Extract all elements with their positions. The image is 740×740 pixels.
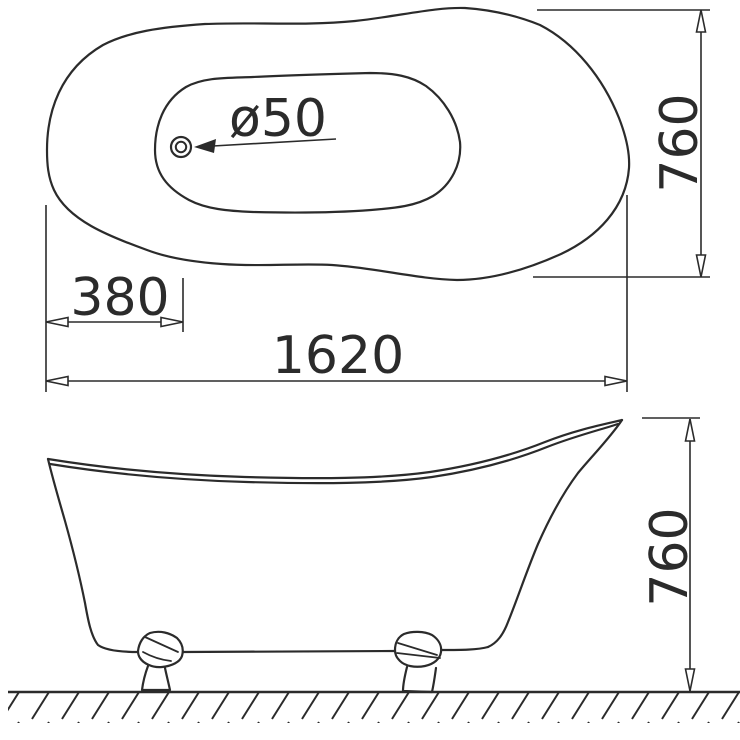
front-foot-leg <box>142 666 170 690</box>
arrowhead-top-icon <box>686 419 695 441</box>
side-view <box>48 420 622 692</box>
drain-diameter-label: ø50 <box>229 89 327 149</box>
rear-foot <box>395 632 441 692</box>
tub-outer-outline <box>47 8 629 280</box>
drain-dimension: ø50 <box>194 89 336 153</box>
tub-front-edge <box>48 459 138 652</box>
ground <box>8 692 740 723</box>
arrowhead-top-icon <box>697 10 706 32</box>
tub-bottom-line-right <box>442 647 488 650</box>
arrowhead-bottom-icon <box>686 669 695 691</box>
overall-width-label: 760 <box>650 93 710 192</box>
top-view <box>47 8 629 280</box>
technical-drawing-canvas: ø50 380 1620 760 <box>0 0 740 740</box>
rim-inner-line <box>50 424 618 483</box>
arrowhead-left-icon <box>46 377 68 386</box>
front-foot-knuckle-detail2 <box>143 652 171 661</box>
dimension-380: 380 <box>46 205 183 392</box>
tub-bottom-line-mid <box>183 651 395 652</box>
overall-height-label: 760 <box>640 507 700 606</box>
arrowhead-left-icon <box>46 318 68 327</box>
drain-icon <box>171 137 191 157</box>
drain-leader-arrow-icon <box>194 139 216 153</box>
dimension-760-width: 760 <box>533 10 710 277</box>
dimension-760-height: 760 <box>640 418 700 691</box>
drain-offset-label: 380 <box>70 268 169 328</box>
front-foot-knuckle-detail <box>145 637 178 652</box>
arrowhead-right-icon <box>605 377 627 386</box>
front-foot <box>138 632 183 690</box>
overall-length-label: 1620 <box>272 326 404 386</box>
ground-hatching <box>8 693 740 723</box>
arrowhead-bottom-icon <box>697 255 706 277</box>
rim-outer-line <box>48 420 622 478</box>
rear-foot-leg <box>403 667 436 692</box>
drain-icon-inner <box>176 142 186 152</box>
bathtub-dimension-drawing: ø50 380 1620 760 <box>0 0 740 740</box>
